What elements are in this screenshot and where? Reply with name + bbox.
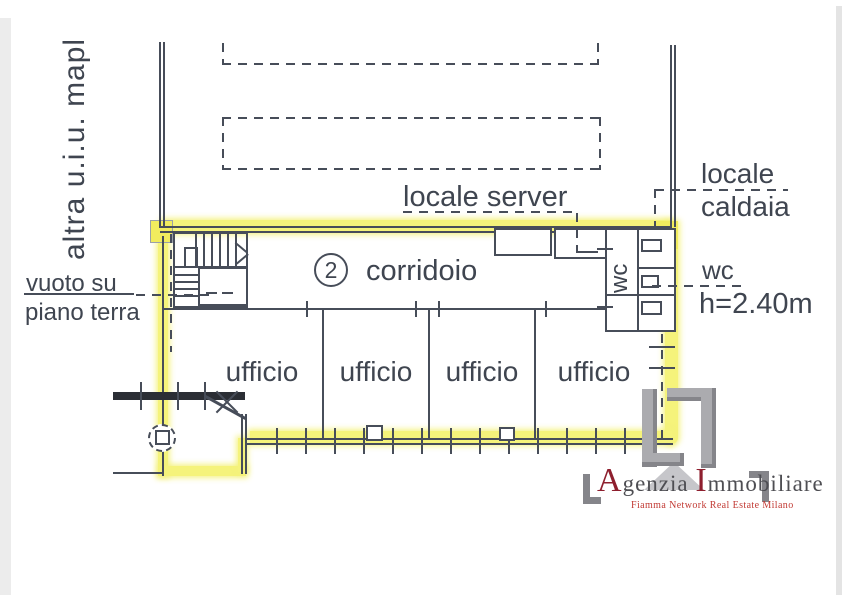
vuoto-label-line1: vuoto su	[26, 270, 117, 298]
office-label-1: ufficio	[208, 356, 316, 388]
stair-tread-v4	[219, 232, 221, 268]
side-annotation-label: altra u.i.u. mapl	[58, 24, 92, 260]
agency-logo-part1: genzia	[623, 471, 696, 496]
stair-tread-h1	[173, 274, 198, 276]
window-tick-right-2	[649, 367, 675, 369]
door-jamb-tick-1	[306, 301, 308, 317]
wc-fixture-3	[641, 301, 662, 315]
server-leader-line	[576, 213, 578, 253]
scan-edge-right	[836, 6, 842, 595]
server-leader-tick	[576, 251, 598, 253]
locale-caldaia-label-line1: locale	[701, 158, 774, 190]
corridor-label: corridoio	[366, 255, 477, 288]
stair-tread-h2	[173, 281, 198, 283]
agency-logo-part2: mmobiliare	[708, 471, 824, 496]
wc-room-label: wc	[606, 235, 634, 293]
wc-internal-wall-v	[637, 230, 639, 330]
agency-logo-initial-a: A	[597, 462, 623, 499]
scan-edge-left	[0, 18, 11, 595]
agency-logo-initial-i: I	[695, 462, 707, 499]
corridor-number: 2	[325, 257, 338, 283]
stair-void-dashed-line	[170, 234, 172, 352]
caldaia-dashed-v	[654, 189, 656, 228]
unit-wall-right-dashed	[661, 334, 663, 438]
agency-logo-subtitle: Fiamma Network Real Estate Milano	[631, 500, 794, 511]
highlight-extension-bottom	[160, 466, 246, 476]
window-hatch-bottom	[276, 428, 632, 454]
radiator-1	[366, 425, 383, 441]
column-symbol-core	[155, 430, 170, 445]
thick-wall-tick-1	[140, 382, 142, 410]
stair-landing-dash-2	[222, 292, 233, 294]
dashed-outline2-right	[599, 117, 601, 170]
door-jamb-tick-2	[415, 301, 417, 317]
dashed-outline1-bottom	[222, 63, 599, 65]
stair-small-rect	[184, 247, 198, 268]
stair-landing	[198, 267, 248, 306]
floorplan-scan: altra u.i.u. mapl locale server locale c…	[0, 0, 842, 595]
office-label-2: ufficio	[322, 356, 430, 388]
dashed-outline2-bottom	[222, 168, 601, 170]
agency-logo-name: Agenzia Immobiliare	[597, 462, 824, 500]
stair-tread-h3	[173, 288, 198, 290]
vuoto-label-line2: piano terra	[25, 299, 140, 327]
vuoto-dashed-leader	[136, 294, 212, 296]
office-label-3: ufficio	[428, 356, 536, 388]
logo-bracket-right-vertical	[701, 388, 716, 468]
locale-server-label: locale server	[403, 181, 567, 214]
exterior-wall-right-upper	[670, 45, 676, 227]
stair-tread-v3	[211, 232, 213, 268]
stair-tread-v2	[203, 232, 205, 268]
wc-note-label: wc	[702, 255, 734, 286]
door-jamb-tick-3	[438, 301, 440, 317]
dashed-outline2-left	[222, 117, 224, 170]
locale-caldaia-label-line2: caldaia	[701, 191, 790, 223]
server-room-a	[494, 228, 552, 256]
dashed-outline1-left	[222, 43, 224, 65]
dashed-outline1-right	[597, 43, 599, 65]
stair-tread-v5	[227, 232, 229, 268]
office-label-4: ufficio	[540, 356, 648, 388]
corridor-number-badge: 2	[314, 253, 348, 287]
server-room-b	[554, 228, 609, 259]
wc-door-tick-2	[597, 306, 613, 308]
wc-internal-wall-h2	[605, 294, 676, 296]
door-jamb-tick-4	[545, 301, 547, 317]
extension-wall-right	[241, 414, 247, 474]
dashed-outline2-top	[222, 117, 601, 119]
exterior-wall-left-upper	[159, 42, 165, 228]
wc-fixture-1	[641, 239, 662, 252]
corridor-wall	[163, 308, 607, 310]
window-tick-right-1	[649, 346, 675, 348]
radiator-2	[499, 427, 515, 441]
wc-note-height: h=2.40m	[699, 288, 813, 321]
thin-line-bottomleft	[113, 472, 163, 474]
thick-wall-tick-2	[177, 382, 179, 410]
wc-internal-wall-h1	[637, 267, 676, 269]
